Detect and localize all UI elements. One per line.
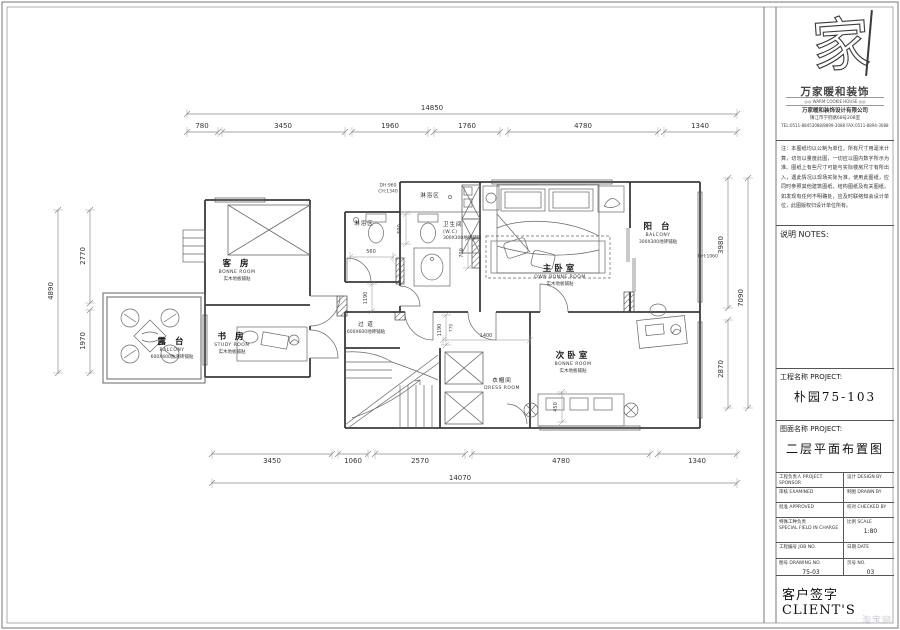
guest-sub: 实木地板铺贴 [219, 277, 256, 284]
room-label-second: 次卧室 BONNE ROOM 实木地板铺贴 [555, 350, 592, 375]
dim-bot-1340: 1340 [688, 457, 706, 465]
dim-inner-590: 590 [397, 224, 403, 234]
guest-en: BONNE ROOM [219, 270, 256, 277]
room-label-balcony: 阳 台 BALCONY 300X300地砖铺贴 [639, 221, 677, 246]
room-label-master: 主卧室 OWN BONNE ROOM 实木地板铺贴 [534, 263, 585, 288]
notes-section: 说明 NOTES: [776, 225, 894, 369]
room-label-wc: 卫生间 (W.C) 300X300地砖铺贴 [443, 222, 481, 243]
guest-name: 客 房 [219, 258, 256, 270]
master-en: OWN BONNE ROOM [534, 275, 585, 282]
dim-bot-4780: 4780 [552, 457, 570, 465]
row4-right-label: 比例 SCALE [847, 520, 872, 525]
master-name: 主卧室 [534, 263, 585, 275]
dim-left-2770: 2770 [79, 247, 87, 265]
dim-bot-3450: 3450 [263, 457, 281, 465]
room-label-corridor: 过 道 600X600地砖铺贴 [347, 322, 385, 336]
dim-inner-700: 700 [459, 248, 465, 258]
room-label-shower1: 淋浴区 [420, 193, 440, 201]
balcony-sub: 300X300地砖铺贴 [639, 240, 677, 247]
dim-top-1760: 1760 [458, 122, 476, 130]
second-name: 次卧室 [555, 350, 592, 362]
company-phone: TEL:0511-88453088/8899-3088 FAX:0511-889… [776, 123, 894, 128]
project-value: 朴园75-103 [776, 388, 894, 405]
notes-paragraph-box: 注：本图纸均以公制为单位，所有尺寸用毫米计算，切勿以量度此图，一切应以图内数字所… [776, 140, 894, 226]
second-en: BONNE ROOM [555, 362, 592, 369]
room-label-study: 书 房 STUDY ROOM 实木地板铺贴 [214, 331, 249, 356]
study-en: STUDY ROOM [214, 343, 249, 350]
dim-top-3450: 3450 [274, 122, 292, 130]
company-name: 万家暖和装饰设计有限公司 [776, 106, 894, 114]
dim-right-2870: 2870 [717, 360, 725, 378]
drawing-label: 图面名称 PROJECT: [776, 421, 894, 434]
row1-right: 设计 DESIGN BY [843, 473, 894, 488]
row2-left: 审核 EXAMINED [776, 488, 843, 503]
dim-top-4780: 4780 [574, 122, 592, 130]
second-sub: 实木地板铺贴 [555, 369, 592, 376]
drawing-sheet: 14850 780 3450 1960 1760 4780 1340 3450 … [0, 0, 900, 630]
project-label: 工程名称 PROJECT: [776, 369, 894, 382]
row4-right: 比例 SCALE 1:80 [843, 518, 894, 543]
dim-top-1340: 1340 [691, 122, 709, 130]
titleblock-row-6: 图号 DRAWING NO. 75-03 页号 NO. 03 [776, 558, 894, 576]
terrace-name: 露 台 [151, 336, 194, 348]
dim-right-3980: 3980 [717, 236, 725, 254]
row4-left-cn: 特殊工种负责 [779, 520, 806, 525]
corridor-sub: 600X600地砖铺贴 [347, 330, 385, 337]
room-label-terrace: 露 台 BALCONY 600X600防滑砖铺贴 [151, 336, 194, 361]
dim-inner-1190b: 1190 [437, 324, 443, 337]
scale-value: 1:80 [847, 528, 894, 536]
row4-left-en: SPECIAL FIELD IN CHARGE [779, 526, 838, 531]
row6-right: 页号 NO. 03 [843, 559, 894, 576]
row1-left: 工程负责人 PROJECT SPONSOR [776, 473, 843, 488]
dimension-lines [0, 0, 900, 630]
titleblock-row-3: 批准 APPROVED 校对 CHECKED BY [776, 502, 894, 518]
terrace-sub: 600X600防滑砖铺贴 [151, 355, 194, 362]
study-sub: 实木地板铺贴 [214, 350, 249, 357]
dim-inner-560: 560 [366, 249, 376, 255]
dim-inner-450: 450 [553, 402, 559, 412]
dim-inner-1190a: 1190 [363, 292, 369, 305]
wc-name: 卫生间 [443, 222, 481, 230]
titleblock-row-2: 审核 EXAMINED 制图 DRAWN BY [776, 487, 894, 503]
drawing-name-section: 图面名称 PROJECT: 二层平面布置图 [776, 420, 894, 473]
room-label-shower2: 淋浴区 [354, 221, 374, 229]
room-label-guest: 客 房 BONNE ROOM 实木地板铺贴 [219, 258, 256, 283]
balcony-name: 阳 台 [639, 221, 677, 233]
cloak-name: 衣帽间 [484, 378, 520, 386]
row5-left: 工程编号 JOB NO. [776, 543, 843, 559]
dim-top-780: 780 [195, 122, 208, 130]
dim-bot-2570: 2570 [411, 457, 429, 465]
drawing-no-label: 图号 DRAWING NO. [779, 561, 821, 566]
dim-note-dh960: DH:960 [380, 184, 397, 189]
brand-tagline: ◎◎ WARM COOKIE HOUSE ◎◎ [786, 97, 884, 106]
corridor-name: 过 道 [347, 322, 385, 330]
dim-left-1970: 1970 [79, 332, 87, 350]
dim-inner-770: 770 [450, 324, 455, 333]
cloak-en: DRESS ROOM [484, 386, 520, 393]
project-section: 工程名称 PROJECT: 朴园75-103 [776, 368, 894, 421]
wc-sub: 300X300地砖铺贴 [443, 236, 481, 243]
dim-left-overall: 4890 [47, 282, 55, 300]
notes-label: 说明 NOTES: [776, 226, 894, 240]
dim-note-ch1340: CH:1340 [378, 190, 398, 195]
dim-top-overall: 14850 [421, 104, 443, 112]
dim-bot-overall: 14070 [449, 474, 471, 482]
client-signature-label: 客户签字 CLIENT'S [776, 576, 894, 618]
shower2-name: 淋浴区 [354, 221, 374, 229]
drawing-value: 二层平面布置图 [776, 440, 894, 457]
study-name: 书 房 [214, 331, 249, 343]
row6-left: 图号 DRAWING NO. 75-03 [776, 559, 843, 576]
watermark: 淘宝网 [862, 613, 892, 626]
dim-right-overall: 7090 [737, 289, 745, 307]
row3-left: 批准 APPROVED [776, 503, 843, 518]
room-label-cloak: 衣帽间 DRESS ROOM [484, 378, 520, 392]
master-sub: 实木地板铺贴 [534, 282, 585, 289]
titleblock-row-1: 工程负责人 PROJECT SPONSOR 设计 DESIGN BY [776, 472, 894, 488]
titleblock-row-4: 特殊工种负责 SPECIAL FIELD IN CHARGE 比例 SCALE … [776, 517, 894, 543]
dim-note-dh1060: DH:1060 [698, 255, 718, 260]
row3-right: 校对 CHECKED BY [843, 503, 894, 518]
company-address: 镇江市学府路68号208室 [776, 115, 894, 121]
shower1-name: 淋浴区 [420, 193, 440, 201]
dim-top-1960: 1960 [381, 122, 399, 130]
dim-inner-1400: 1400 [480, 333, 493, 339]
notes-text: 注：本图纸均以公制为单位，所有尺寸用毫米计算，切勿以量度此图，一切应以图内数字所… [776, 141, 894, 216]
row5-right: 日期 DATE [843, 543, 894, 559]
page-no-label: 页号 NO. [847, 561, 866, 566]
dim-bot-1060: 1060 [344, 457, 362, 465]
row4-left: 特殊工种负责 SPECIAL FIELD IN CHARGE [776, 518, 843, 543]
titleblock-row-5: 工程编号 JOB NO. 日期 DATE [776, 542, 894, 559]
row2-right: 制图 DRAWN BY [843, 488, 894, 503]
